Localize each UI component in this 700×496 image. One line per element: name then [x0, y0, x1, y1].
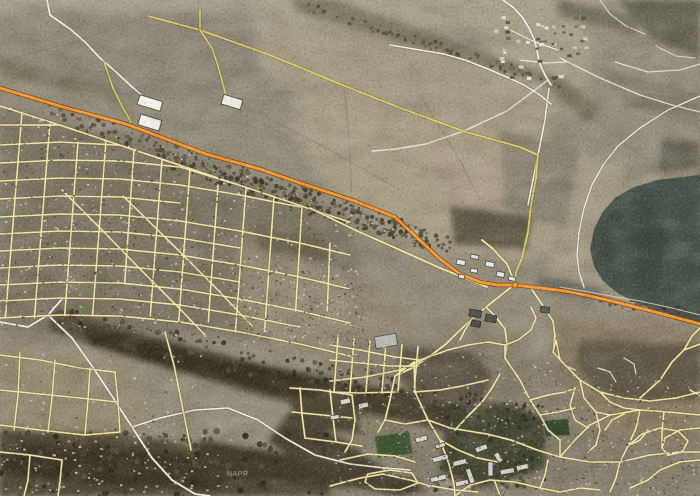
svg-text:NAPR: NAPR [227, 471, 248, 478]
